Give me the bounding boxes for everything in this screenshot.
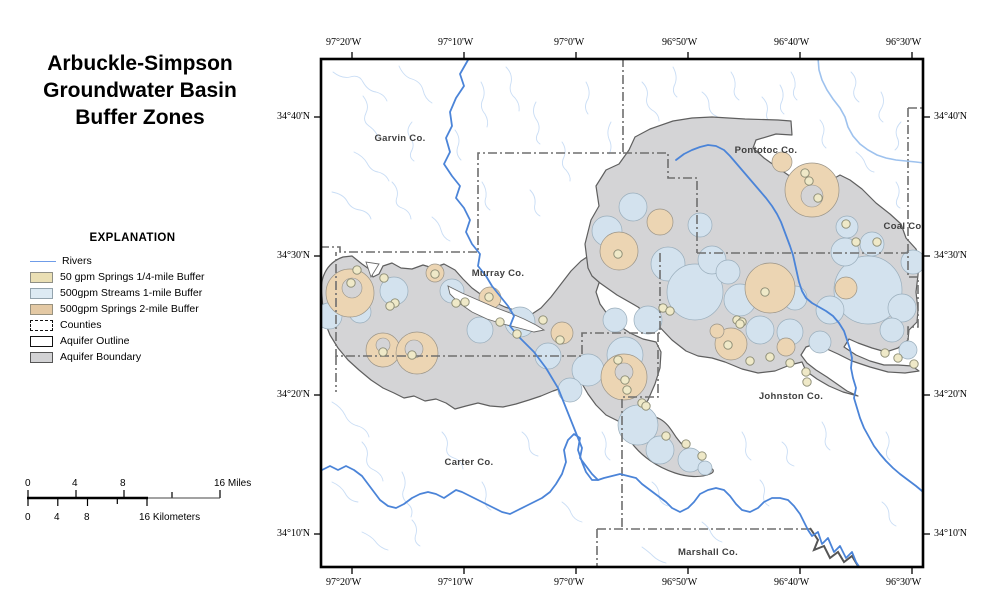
lat-label-left-1: 34°30'N xyxy=(258,250,310,261)
scale-bar: 0 4 8 16 Miles 0 4 8 16 Kilometers xyxy=(18,460,268,538)
map-title-line2: Groundwater Basin xyxy=(14,77,266,104)
aquifer-boundary-swatch xyxy=(30,352,53,363)
scale-miles-4: 4 xyxy=(72,478,78,489)
rivers-line-swatch xyxy=(30,261,56,262)
county-label-garvin: Garvin Co. xyxy=(374,133,425,144)
legend-label: 500gpm Streams 1-mile Buffer xyxy=(60,287,202,299)
scale-km-16: 16 Kilometers xyxy=(139,512,200,523)
lat-label-right-2: 34°20'N xyxy=(934,389,967,400)
legend-label: Aquifer Outline xyxy=(60,335,129,347)
legend-item-500gpm-springs: 500gpm Springs 2-mile Buffer xyxy=(30,301,260,317)
county-label-murray: Murray Co. xyxy=(472,268,525,279)
legend: EXPLANATION Rivers 50 gpm Springs 1/4-mi… xyxy=(30,232,260,365)
lon-label-top-5: 96°30'W xyxy=(886,37,921,48)
map-title-line1: Arbuckle-Simpson xyxy=(14,50,266,77)
county-label-johnston: Johnston Co. xyxy=(759,391,823,402)
county-label-carter: Carter Co. xyxy=(445,457,494,468)
scale-km-4: 4 xyxy=(54,512,60,523)
map-canvas: Garvin Co. Pontotoc Co. Coal Co. Murray … xyxy=(310,48,934,578)
legend-item-aquifer-boundary: Aquifer Boundary xyxy=(30,349,260,365)
scale-miles-0: 0 xyxy=(25,478,31,489)
legend-item-50gpm-springs: 50 gpm Springs 1/4-mile Buffer xyxy=(30,269,260,285)
legend-label: 50 gpm Springs 1/4-mile Buffer xyxy=(60,271,205,283)
scale-miles-8: 8 xyxy=(120,478,126,489)
legend-heading: EXPLANATION xyxy=(30,232,235,244)
lat-label-left-3: 34°10'N xyxy=(258,528,310,539)
lat-label-right-3: 34°10'N xyxy=(934,528,967,539)
legend-item-500gpm-streams: 500gpm Streams 1-mile Buffer xyxy=(30,285,260,301)
lon-label-top-1: 97°10'W xyxy=(438,37,473,48)
streams-buffer-swatch xyxy=(30,288,53,299)
legend-label: 500gpm Springs 2-mile Buffer xyxy=(60,303,199,315)
aquifer-outline-swatch xyxy=(30,336,53,347)
lat-label-left-2: 34°20'N xyxy=(258,389,310,400)
lon-label-bottom-2: 97°0'W xyxy=(554,577,584,588)
legend-label: Counties xyxy=(60,319,101,331)
scale-miles-16: 16 Miles xyxy=(214,478,251,489)
lon-label-bottom-1: 97°10'W xyxy=(438,577,473,588)
lon-label-bottom-0: 97°20'W xyxy=(326,577,361,588)
county-label-pontotoc: Pontotoc Co. xyxy=(735,145,798,156)
springs-quarter-buffer-swatch xyxy=(30,272,53,283)
lat-label-right-1: 34°30'N xyxy=(934,250,967,261)
lat-label-left-0: 34°40'N xyxy=(258,111,310,122)
lon-label-bottom-4: 96°40'W xyxy=(774,577,809,588)
lon-label-bottom-3: 96°50'W xyxy=(662,577,697,588)
legend-item-counties: Counties xyxy=(30,317,260,333)
scale-km-0: 0 xyxy=(25,512,31,523)
springs-two-mile-buffer-swatch xyxy=(30,304,53,315)
map-title-line3: Buffer Zones xyxy=(14,104,266,131)
county-label-marshall: Marshall Co. xyxy=(678,547,738,558)
legend-item-rivers: Rivers xyxy=(30,253,260,269)
legend-label: Rivers xyxy=(62,255,92,267)
lon-label-top-0: 97°20'W xyxy=(326,37,361,48)
lon-label-top-4: 96°40'W xyxy=(774,37,809,48)
lon-label-top-2: 97°0'W xyxy=(554,37,584,48)
page: Arbuckle-Simpson Groundwater Basin Buffe… xyxy=(0,0,1008,612)
legend-item-aquifer-outline: Aquifer Outline xyxy=(30,333,260,349)
counties-swatch xyxy=(30,320,53,331)
scale-km-8: 8 xyxy=(84,512,90,523)
lon-label-top-3: 96°50'W xyxy=(662,37,697,48)
map-content: Garvin Co. Pontotoc Co. Coal Co. Murray … xyxy=(316,58,926,570)
map-title: Arbuckle-Simpson Groundwater Basin Buffe… xyxy=(14,50,266,131)
lon-label-bottom-5: 96°30'W xyxy=(886,577,921,588)
county-label-coal: Coal Co. xyxy=(884,221,925,232)
lat-label-right-0: 34°40'N xyxy=(934,111,967,122)
legend-label: Aquifer Boundary xyxy=(60,351,141,363)
